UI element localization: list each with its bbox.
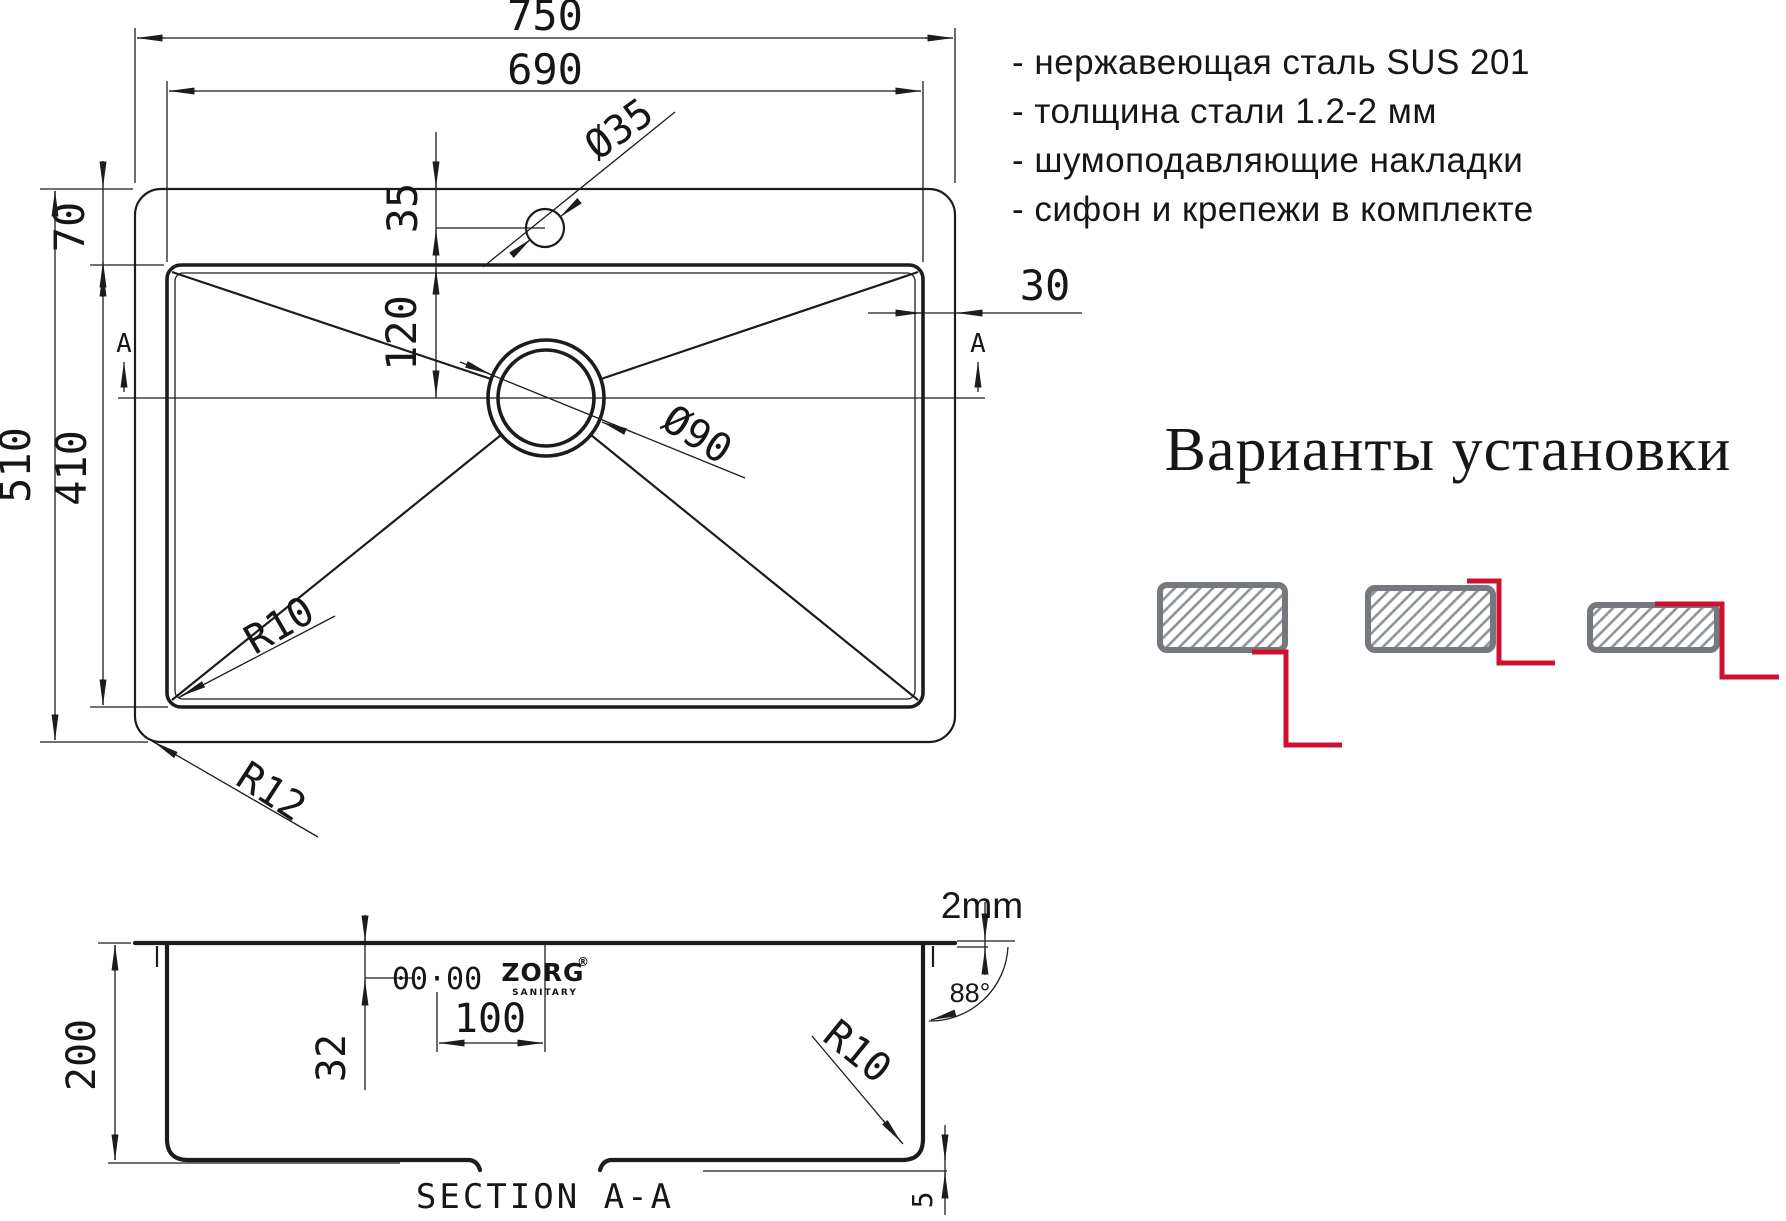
dim-510-text: 510 — [0, 427, 40, 503]
spec-item-included: - сифон и крепежи в комплекте — [1012, 190, 1534, 229]
counter-section-3 — [1590, 605, 1717, 650]
counter-section-2 — [1368, 588, 1493, 650]
brand-logo: ZORG ® SANITARY — [501, 955, 589, 998]
spec-item-thickness: - толщина стали 1.2-2 мм — [1012, 92, 1437, 131]
brand-logo-subtext: SANITARY — [512, 988, 578, 998]
sink-technical-drawing: A A 750 690 35 — [0, 0, 1786, 1221]
counter-section-1 — [1160, 585, 1285, 650]
section-marker-left: A — [116, 329, 132, 359]
dim-750-text: 750 — [507, 0, 583, 40]
section-title: SECTION A-A — [416, 1177, 674, 1217]
dim-angle-88-text: 88° — [950, 978, 991, 1008]
dim-30-text: 30 — [1020, 261, 1071, 310]
dim-32-text: 32 — [309, 1034, 355, 1082]
spec-item-steel: - нержавеющая сталь SUS 201 — [1012, 43, 1530, 82]
section-marker-right: A — [970, 329, 986, 359]
dim-100-text: 100 — [454, 996, 526, 1042]
dim-690-text: 690 — [507, 45, 583, 94]
dim-5-text: 5 — [906, 1192, 939, 1209]
dim-200-text: 200 — [59, 1019, 105, 1091]
dim-2mm-text: 2mm — [941, 885, 1023, 926]
dim-35-text: 35 — [378, 183, 427, 234]
dim-120-text: 120 — [377, 295, 426, 371]
drawing-sheet: A A 750 690 35 — [0, 0, 1786, 1221]
brand-logo-text: ZORG — [501, 958, 584, 987]
dim-70-text: 70 — [45, 202, 94, 253]
clip-holes-mark: 00·00 — [392, 962, 482, 997]
installation-heading: Варианты установки — [1165, 416, 1732, 484]
brand-logo-registered: ® — [577, 955, 589, 969]
spec-item-soundproofing: - шумоподавляющие накладки — [1012, 141, 1523, 180]
